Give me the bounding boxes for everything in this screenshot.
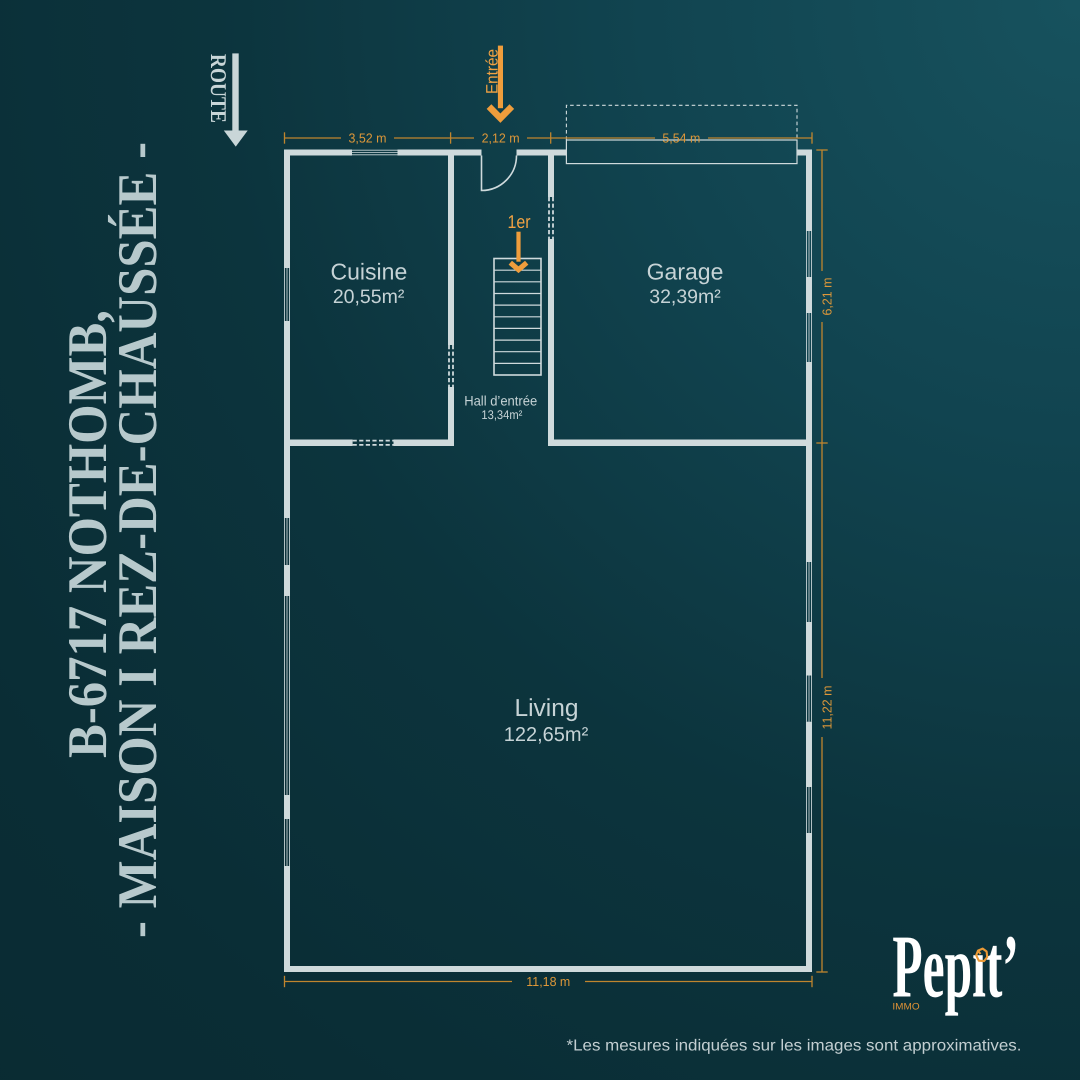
svg-text:11,18 m: 11,18 m [526,974,570,989]
svg-text:122,65m²: 122,65m² [504,724,589,746]
svg-text:2,12 m: 2,12 m [482,130,520,145]
svg-text:Garage: Garage [647,259,724,285]
svg-text:Living: Living [514,695,578,722]
svg-text:ROUTE: ROUTE [206,54,231,123]
svg-text:IMMO: IMMO [892,1002,919,1013]
svg-text:- MAISON I REZ-DE-CHAUSSÉE -: - MAISON I REZ-DE-CHAUSSÉE - [107,142,169,938]
svg-text:*Les mesures indiquées sur les: *Les mesures indiquées sur les images so… [567,1038,1022,1055]
svg-text:11,22 m: 11,22 m [820,686,835,730]
svg-text:32,39m²: 32,39m² [649,286,721,308]
svg-text:3,52 m: 3,52 m [349,130,387,145]
svg-text:Cuisine: Cuisine [331,259,408,285]
svg-text:5,54 m: 5,54 m [662,130,700,145]
svg-text:20,55m²: 20,55m² [333,286,405,308]
svg-text:13,34m²: 13,34m² [481,408,522,422]
svg-text:Hall d’entrée: Hall d’entrée [464,394,537,409]
svg-text:6,21 m: 6,21 m [820,278,835,316]
svg-text:1er: 1er [508,211,531,232]
